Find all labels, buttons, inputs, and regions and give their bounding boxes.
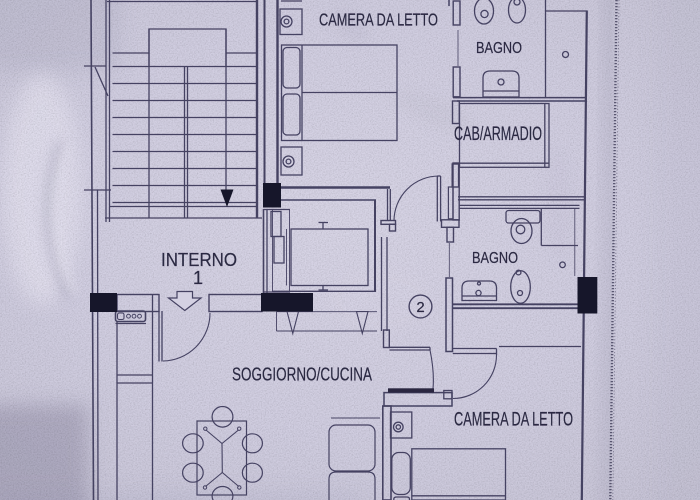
svg-text:INTERNO: INTERNO — [161, 249, 237, 270]
svg-text:BAGNO: BAGNO — [472, 250, 518, 267]
svg-text:CAMERA DA LETTO: CAMERA DA LETTO — [319, 10, 438, 30]
svg-text:2: 2 — [416, 299, 424, 316]
svg-text:BAGNO: BAGNO — [476, 40, 522, 57]
svg-text:1: 1 — [193, 268, 203, 288]
svg-text:CAB/ARMADIO: CAB/ARMADIO — [454, 124, 542, 145]
svg-text:CAMERA DA LETTO: CAMERA DA LETTO — [454, 409, 573, 431]
svg-text:SOGGIORNO/CUCINA: SOGGIORNO/CUCINA — [232, 364, 372, 385]
